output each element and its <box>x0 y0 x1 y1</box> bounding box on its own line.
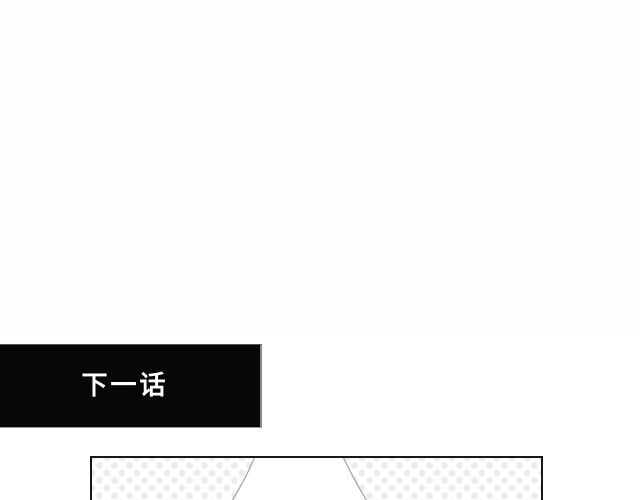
comic-panel <box>90 456 543 500</box>
next-chapter-button[interactable]: 下一话 <box>0 344 262 428</box>
head-outline-sketch <box>92 458 541 500</box>
next-chapter-label: 下一话 <box>81 373 178 399</box>
previous-panel-blank-area <box>0 0 640 334</box>
comic-reader-page: 下一话 <box>0 0 640 500</box>
